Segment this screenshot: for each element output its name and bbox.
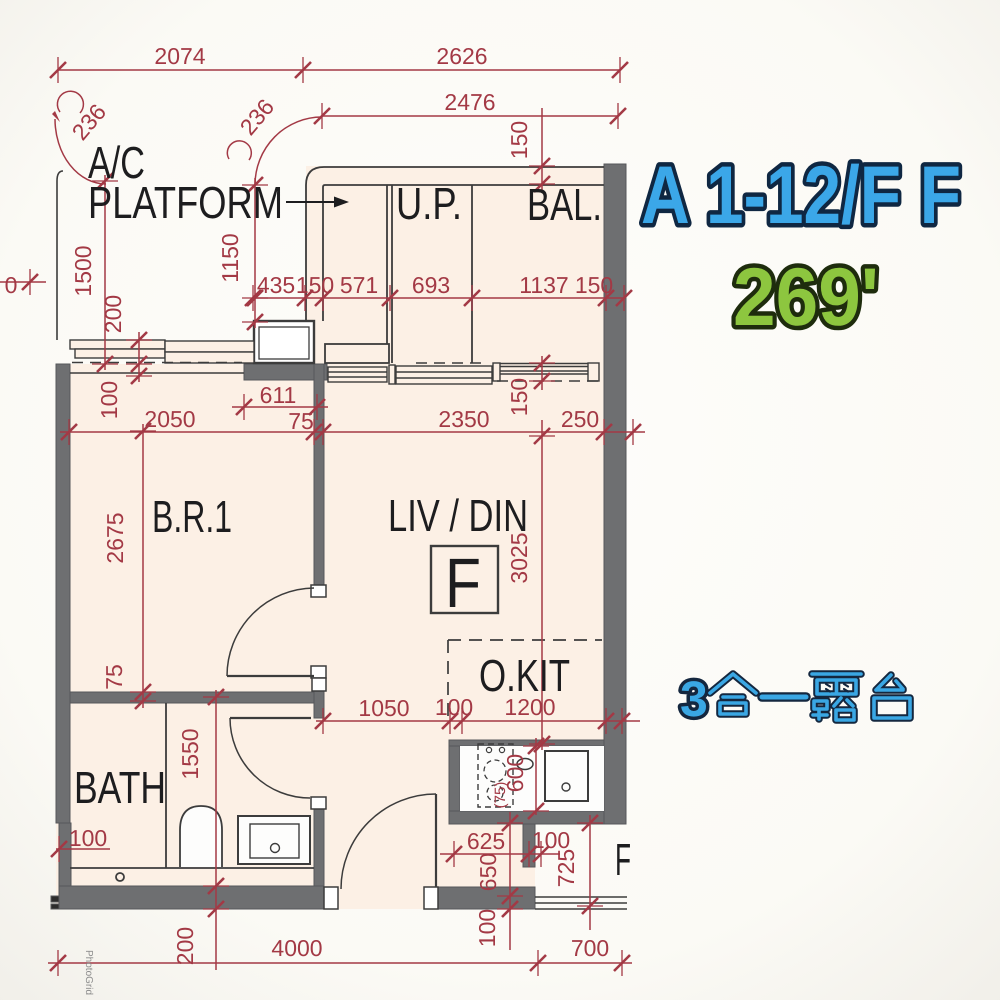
svg-text:1550: 1550 [177,728,203,779]
svg-text:75: 75 [288,408,314,434]
svg-text:PLATFORM: PLATFORM [88,177,283,228]
svg-text:BATH: BATH [74,762,166,813]
svg-text:250: 250 [561,406,599,432]
svg-text:BAL.: BAL. [527,179,602,230]
svg-text:100: 100 [435,694,473,720]
svg-text:700: 700 [571,935,609,961]
svg-text:435: 435 [257,272,295,298]
svg-text:PhotoGrid: PhotoGrid [83,950,94,995]
svg-text:1137: 1137 [519,272,568,298]
svg-text:725: 725 [553,849,579,887]
svg-text:O.KIT: O.KIT [479,650,570,701]
svg-text:625: 625 [467,828,505,854]
svg-text:U.P.: U.P. [396,178,462,229]
svg-text:2476: 2476 [444,89,495,115]
svg-text:2626: 2626 [436,43,487,69]
svg-text:2675: 2675 [102,512,128,563]
svg-text:75: 75 [101,664,127,690]
svg-text:100: 100 [96,381,122,419]
svg-text:A 1-12/F F: A 1-12/F F [641,150,961,241]
svg-text:150: 150 [296,272,334,298]
svg-text:LIV / DIN: LIV / DIN [388,490,528,541]
svg-text:B.R.1: B.R.1 [152,491,232,542]
svg-text:3: 3 [680,671,708,727]
svg-text:2050: 2050 [144,406,195,432]
svg-text:611: 611 [260,382,297,408]
svg-text:100: 100 [69,825,107,851]
svg-text:650: 650 [475,853,501,891]
svg-text:2350: 2350 [438,406,489,432]
svg-text:(75): (75) [492,782,509,809]
svg-text:150: 150 [506,378,532,416]
svg-text:4000: 4000 [271,935,322,961]
svg-text:571: 571 [340,272,378,298]
svg-text:100: 100 [474,909,500,947]
svg-text:200: 200 [100,295,126,333]
svg-text:200: 200 [172,927,198,965]
svg-text:0: 0 [5,272,18,298]
svg-text:F: F [615,834,631,885]
svg-text:693: 693 [412,272,450,298]
svg-text:1150: 1150 [217,233,243,282]
svg-text:269': 269' [733,252,879,343]
svg-text:2074: 2074 [154,43,205,69]
svg-text:150: 150 [506,121,532,159]
svg-text:F: F [445,544,481,622]
svg-text:1500: 1500 [70,245,96,296]
svg-text:1050: 1050 [358,695,409,721]
svg-text:150: 150 [575,272,613,298]
